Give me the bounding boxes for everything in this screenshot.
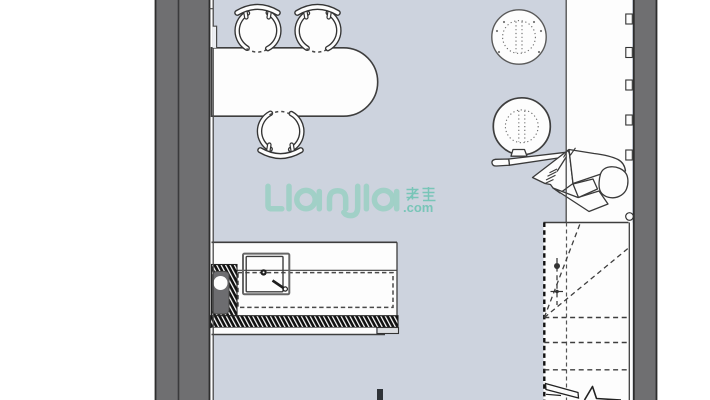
svg-text:.com: .com — [403, 200, 433, 215]
